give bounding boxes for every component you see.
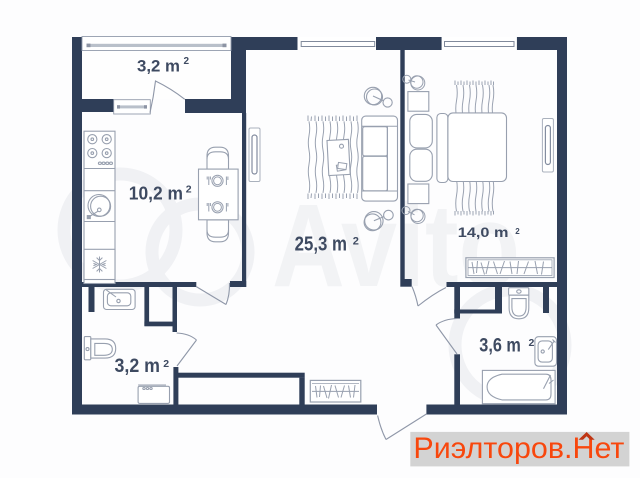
svg-text:2: 2 <box>515 227 520 236</box>
svg-text:25,3 m: 25,3 m <box>295 233 347 255</box>
svg-text:14,0 m: 14,0 m <box>458 224 509 240</box>
svg-text:10,2 m: 10,2 m <box>129 183 183 203</box>
svg-text:2: 2 <box>184 56 190 67</box>
svg-text:2: 2 <box>163 358 169 370</box>
svg-text:2: 2 <box>353 235 359 247</box>
svg-text:Риэлторов.Нет: Риэлторов.Нет <box>413 432 624 465</box>
svg-text:3,2 m: 3,2 m <box>115 356 161 377</box>
svg-text:3,6 m: 3,6 m <box>479 334 521 356</box>
svg-text:2: 2 <box>186 184 192 196</box>
svg-text:3,2 m: 3,2 m <box>137 56 180 75</box>
svg-text:2: 2 <box>529 337 535 349</box>
